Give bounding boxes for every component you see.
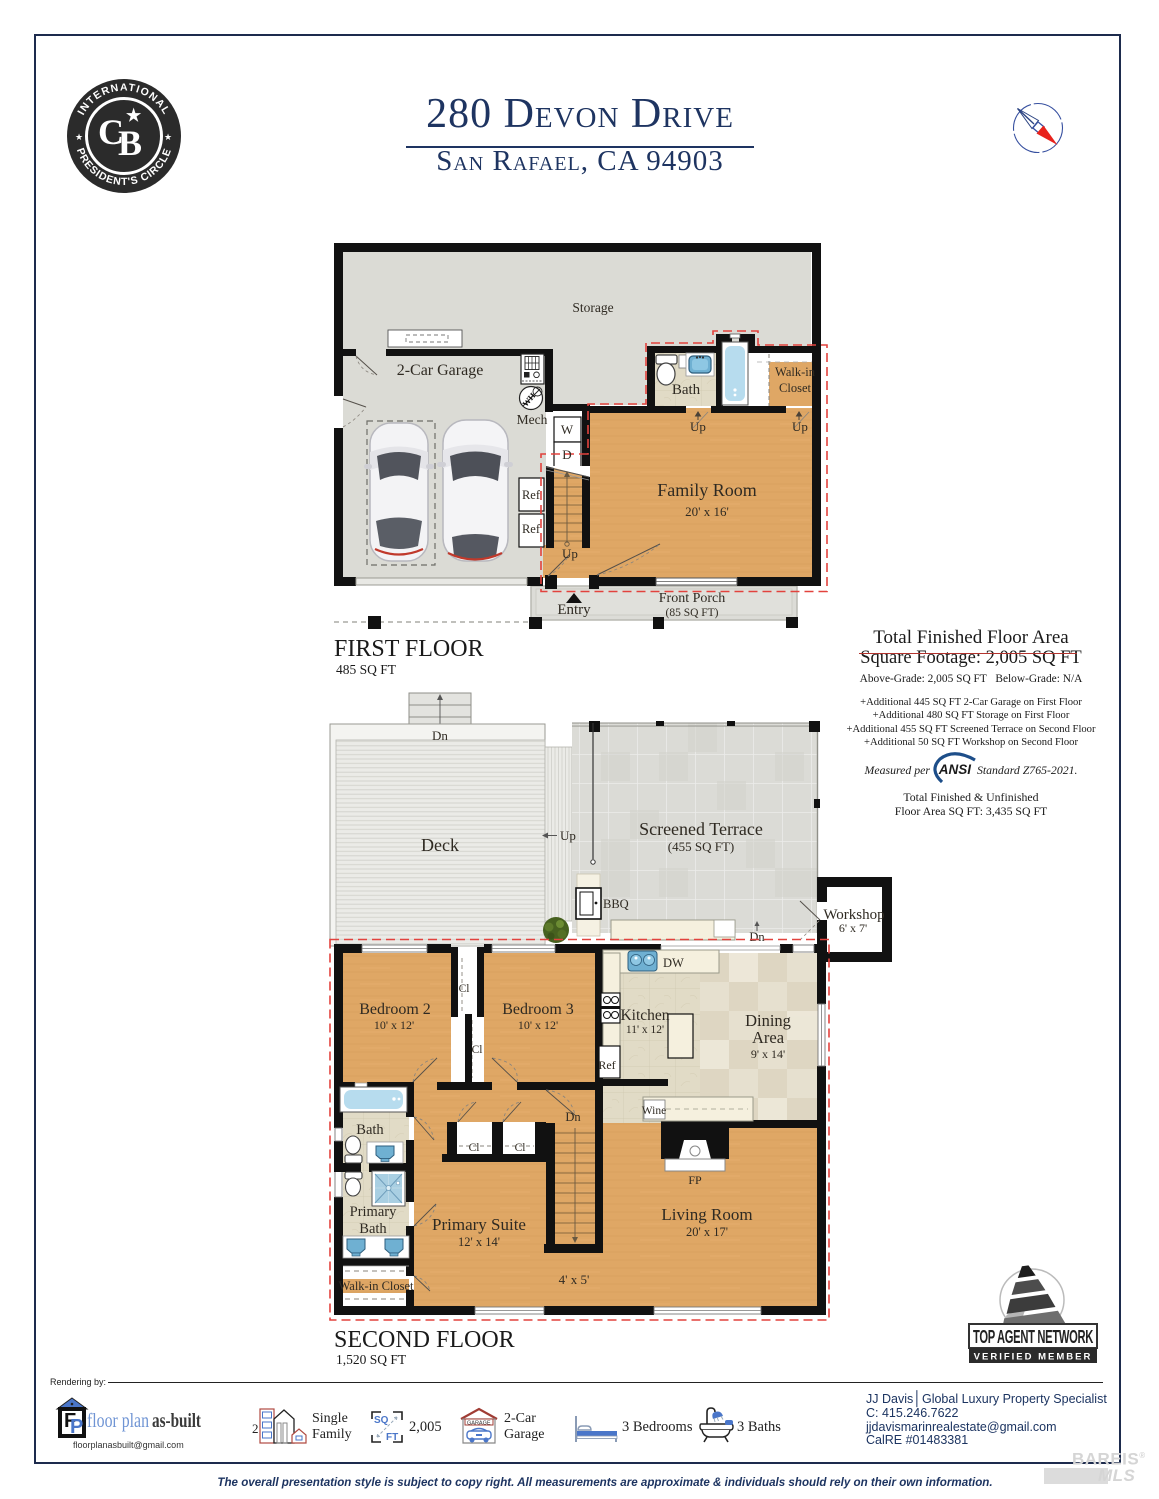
svg-text:FIRST FLOOR: FIRST FLOOR [334,636,484,662]
svg-text:floor plan: floor plan [87,1410,149,1432]
svg-text:VERIFIED MEMBER: VERIFIED MEMBER [974,1352,1093,1363]
svg-text:B: B [118,123,142,163]
svg-text:Deck: Deck [421,835,459,855]
svg-text:4' x 5': 4' x 5' [559,1272,590,1287]
svg-text:as-built: as-built [152,1410,201,1432]
svg-text:Storage: Storage [572,300,613,315]
svg-text:Cl: Cl [459,983,470,995]
svg-text:2-Car Garage: 2-Car Garage [397,362,484,379]
svg-text:Closet: Closet [779,381,811,395]
svg-text:(85 SQ FT): (85 SQ FT) [665,607,718,619]
svg-text:Walk-in: Walk-in [775,365,816,379]
svg-text:10' x 12': 10' x 12' [518,1018,558,1032]
svg-text:20' x 16': 20' x 16' [685,504,729,519]
svg-text:10' x 12': 10' x 12' [374,1018,414,1032]
svg-text:1,520 SQ FT: 1,520 SQ FT [336,1352,407,1367]
svg-text:Kitchen: Kitchen [620,1007,669,1024]
svg-text:BBQ: BBQ [603,897,629,911]
svg-text:★: ★ [164,132,172,142]
svg-text:12' x 14': 12' x 14' [458,1235,500,1249]
svg-text:SQ: SQ [374,1415,389,1426]
svg-text:W: W [561,422,574,437]
svg-text:★: ★ [126,106,142,125]
svg-text:Dn: Dn [565,1110,581,1124]
svg-text:Cl: Cl [472,1044,483,1056]
svg-text:Up: Up [690,419,706,434]
svg-text:Cl: Cl [469,1142,480,1154]
svg-text:★: ★ [75,132,83,142]
svg-text:Living Room: Living Room [661,1205,752,1224]
svg-text:485 SQ FT: 485 SQ FT [336,662,397,677]
svg-text:Wine: Wine [642,1105,666,1117]
svg-text:Walk-in Closet: Walk-in Closet [338,1279,414,1293]
svg-text:Bedroom 3: Bedroom 3 [502,1001,574,1018]
svg-text:2: 2 [252,1421,259,1436]
svg-text:Ref: Ref [522,522,541,536]
svg-text:Front Porch: Front Porch [659,591,726,606]
svg-text:20' x 17': 20' x 17' [686,1225,728,1239]
svg-text:6' x 7': 6' x 7' [839,921,867,935]
svg-text:SECOND FLOOR: SECOND FLOOR [334,1327,515,1353]
svg-text:Ref: Ref [598,1058,615,1072]
svg-text:Up: Up [792,419,808,434]
svg-text:P: P [70,1416,83,1438]
svg-text:9' x 14': 9' x 14' [751,1047,785,1061]
svg-text:Primary Suite: Primary Suite [432,1215,526,1234]
svg-text:Dn: Dn [432,728,448,743]
svg-text:Bedroom 2: Bedroom 2 [359,1001,431,1018]
svg-text:GARAGE: GARAGE [467,1421,491,1427]
svg-text:Cl: Cl [515,1142,526,1154]
svg-text:11' x 12': 11' x 12' [626,1024,664,1036]
svg-text:D: D [562,447,571,462]
svg-text:Screened Terrace: Screened Terrace [639,819,763,839]
svg-text:TOP AGENT NETWORK: TOP AGENT NETWORK [973,1327,1093,1347]
svg-text:(455 SQ FT): (455 SQ FT) [668,839,734,854]
svg-text:FP: FP [688,1173,702,1187]
svg-text:Entry: Entry [557,602,591,618]
svg-text:DW: DW [663,956,684,970]
svg-text:Primary: Primary [350,1204,397,1220]
svg-text:Dn: Dn [749,930,765,944]
svg-text:Ref: Ref [522,488,541,502]
svg-text:FT: FT [386,1432,398,1443]
svg-text:Family Room: Family Room [657,480,757,500]
svg-text:Up: Up [560,828,576,843]
svg-text:Area: Area [752,1028,785,1047]
svg-text:Up: Up [562,546,578,561]
svg-text:Mech: Mech [517,412,548,427]
svg-text:Bath: Bath [672,382,701,398]
svg-text:Bath: Bath [356,1122,384,1138]
svg-text:Bath: Bath [359,1221,387,1237]
